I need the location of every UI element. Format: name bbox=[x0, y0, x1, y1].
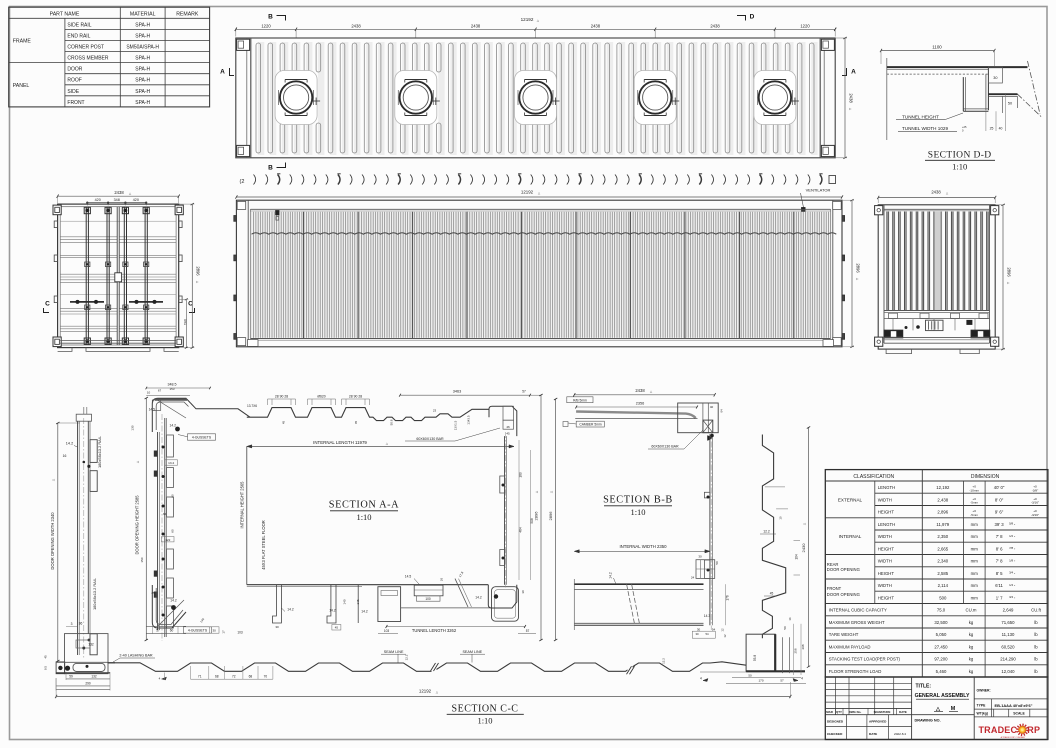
svg-text:DOOR: DOOR bbox=[67, 67, 82, 73]
svg-text:2,665: 2,665 bbox=[937, 547, 948, 552]
svg-text:B: B bbox=[268, 14, 273, 21]
svg-text:ROOF: ROOF bbox=[67, 78, 81, 84]
svg-text:SIGNATURE: SIGNATURE bbox=[874, 710, 891, 714]
svg-text:71: 71 bbox=[198, 675, 202, 679]
svg-text:2438: 2438 bbox=[710, 24, 720, 29]
svg-text:67: 67 bbox=[158, 389, 162, 393]
svg-text:2356: 2356 bbox=[636, 401, 644, 405]
svg-text:12192: 12192 bbox=[521, 17, 534, 22]
svg-text:-3/16": -3/16" bbox=[1031, 513, 1039, 517]
svg-text:2896: 2896 bbox=[534, 511, 539, 521]
svg-text:(2: (2 bbox=[240, 179, 245, 185]
svg-text:INTERNAL CUBIC CAPACITY: INTERNAL CUBIC CAPACITY bbox=[829, 608, 887, 613]
svg-text:DOOR OPENING WIDTH 2340: DOOR OPENING WIDTH 2340 bbox=[50, 512, 55, 570]
svg-text:8' 0": 8' 0" bbox=[995, 498, 1004, 503]
svg-text:2438: 2438 bbox=[635, 388, 645, 393]
svg-text:12.2: 12.2 bbox=[662, 658, 666, 664]
svg-text:SPA-H: SPA-H bbox=[135, 100, 150, 106]
svg-text:12: 12 bbox=[721, 628, 725, 632]
svg-text:3: 3 bbox=[71, 622, 73, 626]
svg-text:STACKING TEST LOAD(PER POST): STACKING TEST LOAD(PER POST) bbox=[829, 657, 901, 662]
svg-text:57: 57 bbox=[156, 629, 160, 633]
svg-text:30: 30 bbox=[993, 76, 997, 80]
svg-text:97,200: 97,200 bbox=[934, 657, 948, 662]
svg-text:36: 36 bbox=[163, 512, 167, 516]
svg-text:SPA-H: SPA-H bbox=[135, 78, 150, 84]
svg-text:lb: lb bbox=[1034, 632, 1038, 637]
svg-text:kg: kg bbox=[969, 632, 974, 637]
svg-text:2022.8.4: 2022.8.4 bbox=[894, 732, 906, 736]
svg-text:2,896: 2,896 bbox=[937, 510, 948, 515]
svg-text:WIDTH: WIDTH bbox=[878, 583, 892, 588]
svg-text:59: 59 bbox=[69, 675, 73, 679]
svg-text:1/4: 1/4 bbox=[1009, 583, 1013, 587]
svg-text:10: 10 bbox=[147, 391, 151, 395]
svg-text:REMARK: REMARK bbox=[176, 11, 199, 17]
svg-text:9' 6": 9' 6" bbox=[995, 510, 1004, 515]
svg-text:5/8: 5/8 bbox=[1009, 522, 1013, 526]
svg-text:A: A bbox=[851, 69, 856, 76]
svg-text:PART NAME: PART NAME bbox=[50, 11, 80, 17]
svg-text:5,460: 5,460 bbox=[936, 669, 947, 674]
svg-text:lb: lb bbox=[1034, 657, 1038, 662]
svg-text:DRAWING NO.: DRAWING NO. bbox=[915, 719, 941, 723]
svg-text:-10mm: -10mm bbox=[969, 488, 979, 492]
svg-text:30: 30 bbox=[213, 629, 217, 633]
svg-text:REAR: REAR bbox=[827, 562, 839, 567]
svg-text:60X60X130 BAR: 60X60X130 BAR bbox=[651, 445, 679, 449]
svg-text:170: 170 bbox=[758, 679, 763, 683]
svg-text:2438: 2438 bbox=[931, 190, 941, 195]
svg-text:4-GUSSETS: 4-GUSSETS bbox=[192, 436, 212, 440]
svg-text:1:10: 1:10 bbox=[477, 716, 492, 726]
svg-text:13.7X6: 13.7X6 bbox=[247, 404, 257, 408]
svg-text:150: 150 bbox=[140, 557, 144, 562]
svg-text:153: 153 bbox=[169, 387, 174, 391]
svg-text:EXTERNAL: EXTERNAL bbox=[838, 497, 863, 502]
svg-text:1/8: 1/8 bbox=[1009, 558, 1013, 562]
svg-text:4: 4 bbox=[801, 677, 803, 681]
svg-text:40' 0": 40' 0" bbox=[994, 485, 1005, 490]
svg-text:2438: 2438 bbox=[591, 24, 601, 29]
svg-text:7' 8: 7' 8 bbox=[996, 534, 1003, 539]
svg-text:68: 68 bbox=[215, 675, 219, 679]
svg-text:30: 30 bbox=[695, 632, 699, 636]
svg-text:SIDE RAIL: SIDE RAIL bbox=[67, 22, 91, 28]
svg-text:11,130: 11,130 bbox=[1002, 632, 1015, 637]
svg-text:60: 60 bbox=[171, 529, 175, 533]
svg-text:lb: lb bbox=[1034, 669, 1038, 674]
svg-text:60X60X130 BAR: 60X60X130 BAR bbox=[416, 437, 444, 441]
svg-text:45: 45 bbox=[506, 432, 510, 436]
svg-text:60,520: 60,520 bbox=[1001, 645, 1015, 650]
svg-text:298: 298 bbox=[801, 644, 805, 649]
svg-text:10: 10 bbox=[779, 516, 783, 520]
svg-text:HEIGHT: HEIGHT bbox=[878, 510, 895, 515]
svg-text:MAXIMUM GROSS WEIGHT: MAXIMUM GROSS WEIGHT bbox=[829, 620, 885, 625]
svg-text:mm: mm bbox=[971, 534, 979, 539]
svg-text:SEAM LINE: SEAM LINE bbox=[384, 650, 404, 654]
svg-text:EB-1AAA 40'x8'x9'6": EB-1AAA 40'x8'x9'6" bbox=[995, 703, 1033, 708]
svg-text:SPA-H: SPA-H bbox=[135, 33, 150, 39]
svg-text:30: 30 bbox=[521, 590, 525, 594]
svg-text:DOOR OPENING HEIGHT 2585: DOOR OPENING HEIGHT 2585 bbox=[135, 495, 140, 555]
svg-text:TARE WEIGHT: TARE WEIGHT bbox=[829, 632, 859, 637]
svg-text:45: 45 bbox=[282, 421, 286, 425]
svg-text:CHECKED: CHECKED bbox=[827, 732, 843, 736]
svg-text:2896: 2896 bbox=[195, 266, 200, 276]
svg-text:214,290: 214,290 bbox=[1000, 657, 1016, 662]
svg-text:INTERNAL: INTERNAL bbox=[839, 534, 862, 539]
svg-text:14.2: 14.2 bbox=[169, 424, 176, 428]
svg-text:WIDTH: WIDTH bbox=[878, 534, 892, 539]
svg-text:2-40 LASHING BAR: 2-40 LASHING BAR bbox=[119, 654, 153, 658]
svg-text:HEIGHT: HEIGHT bbox=[878, 571, 895, 576]
svg-text:420: 420 bbox=[95, 198, 101, 202]
svg-text:24: 24 bbox=[691, 576, 695, 580]
svg-text:R/B 5mm: R/B 5mm bbox=[573, 398, 587, 402]
svg-text:30: 30 bbox=[698, 555, 702, 559]
svg-text:50: 50 bbox=[783, 626, 787, 630]
svg-text:104: 104 bbox=[795, 554, 799, 560]
svg-text:2,649: 2,649 bbox=[1003, 608, 1014, 613]
svg-text:57: 57 bbox=[522, 389, 526, 393]
svg-text:420: 420 bbox=[133, 198, 139, 202]
svg-text:-3/8": -3/8" bbox=[1032, 488, 1038, 492]
svg-text:1:10: 1:10 bbox=[952, 162, 967, 172]
svg-text:348.5: 348.5 bbox=[168, 383, 177, 387]
svg-text:14.2: 14.2 bbox=[361, 610, 368, 614]
svg-text:45X3 FLAT STEEL FLOOR: 45X3 FLAT STEEL FLOOR bbox=[261, 520, 266, 570]
svg-text:SM50A/SPA-H: SM50A/SPA-H bbox=[126, 44, 159, 50]
svg-text:TUNNEL HEIGHT: TUNNEL HEIGHT bbox=[902, 114, 939, 119]
svg-text:kg: kg bbox=[969, 657, 974, 662]
svg-text:CROSS MEMBER: CROSS MEMBER bbox=[67, 56, 109, 62]
svg-text:CLASSIFICATION: CLASSIFICATION bbox=[853, 474, 894, 480]
svg-text:GENERAL ASSEMBLY: GENERAL ASSEMBLY bbox=[915, 693, 970, 699]
svg-text:TITLE:: TITLE: bbox=[916, 684, 932, 690]
svg-text:11,979: 11,979 bbox=[936, 522, 949, 527]
svg-text:57: 57 bbox=[526, 629, 530, 633]
svg-text:RP: RP bbox=[1027, 725, 1040, 735]
svg-text:DIMENSION: DIMENSION bbox=[971, 474, 1000, 480]
svg-text:60: 60 bbox=[171, 494, 175, 498]
svg-text:2438: 2438 bbox=[849, 93, 854, 103]
svg-text:23: 23 bbox=[433, 409, 437, 413]
svg-text:28 90 28: 28 90 28 bbox=[349, 394, 362, 398]
svg-text:103: 103 bbox=[237, 631, 243, 635]
svg-text:180x58x13.2 RAIL: 180x58x13.2 RAIL bbox=[92, 577, 97, 610]
svg-text:140: 140 bbox=[343, 599, 347, 604]
svg-text:WIDTH: WIDTH bbox=[878, 498, 892, 503]
svg-text:68: 68 bbox=[249, 675, 253, 679]
svg-text:2430: 2430 bbox=[801, 543, 806, 553]
svg-text:16: 16 bbox=[788, 617, 792, 621]
svg-text:1100: 1100 bbox=[932, 45, 942, 50]
svg-text:348: 348 bbox=[114, 198, 120, 202]
svg-text:WT(kg): WT(kg) bbox=[977, 712, 989, 716]
svg-text:DATE: DATE bbox=[899, 710, 907, 714]
svg-text:END RAIL: END RAIL bbox=[67, 33, 90, 39]
svg-text:mm: mm bbox=[971, 522, 979, 527]
svg-text:130: 130 bbox=[131, 425, 135, 430]
svg-text:DESIGNED: DESIGNED bbox=[827, 720, 844, 724]
svg-text:2438: 2438 bbox=[351, 24, 361, 29]
svg-text:2896: 2896 bbox=[1007, 267, 1012, 277]
svg-text:SPA-H: SPA-H bbox=[135, 22, 150, 28]
svg-text:54: 54 bbox=[705, 632, 709, 636]
svg-text:13.2: 13.2 bbox=[168, 461, 174, 465]
svg-text:1' 7: 1' 7 bbox=[996, 596, 1003, 601]
svg-text:SPA-H: SPA-H bbox=[135, 89, 150, 95]
svg-text:45: 45 bbox=[44, 655, 48, 659]
svg-text:TRADEC: TRADEC bbox=[978, 725, 1017, 735]
svg-text:39' 3: 39' 3 bbox=[995, 522, 1005, 527]
svg-text:mm: mm bbox=[971, 571, 979, 576]
svg-text:176: 176 bbox=[726, 595, 730, 601]
svg-text:500: 500 bbox=[939, 596, 947, 601]
svg-text:2,340: 2,340 bbox=[937, 559, 948, 564]
svg-text:2,114: 2,114 bbox=[938, 583, 949, 588]
svg-text:60: 60 bbox=[170, 629, 174, 633]
svg-text:9.5: 9.5 bbox=[44, 666, 48, 671]
svg-text:14.2: 14.2 bbox=[170, 599, 177, 603]
svg-text:SCALE: SCALE bbox=[1013, 712, 1025, 716]
svg-text:2,585: 2,585 bbox=[937, 571, 948, 576]
svg-text:APPROVED: APPROVED bbox=[869, 720, 887, 724]
svg-text:3/4: 3/4 bbox=[1009, 595, 1013, 599]
svg-text:OWNER:: OWNER: bbox=[977, 689, 991, 693]
svg-text:28 90 28: 28 90 28 bbox=[275, 394, 288, 398]
svg-text:100: 100 bbox=[425, 597, 431, 601]
svg-text:50: 50 bbox=[748, 674, 752, 678]
svg-text:12,040: 12,040 bbox=[1001, 669, 1015, 674]
svg-text:12.2: 12.2 bbox=[405, 654, 409, 660]
svg-text:kg: kg bbox=[969, 645, 974, 650]
svg-text:SPA-H: SPA-H bbox=[135, 56, 150, 62]
svg-text:WIDTH: WIDTH bbox=[878, 559, 892, 564]
svg-text:INTERNAL HEIGHT 2565: INTERNAL HEIGHT 2565 bbox=[239, 481, 244, 529]
svg-text:1220: 1220 bbox=[261, 24, 271, 29]
svg-text:-5mm: -5mm bbox=[970, 501, 978, 505]
svg-text:DOOR OPENING: DOOR OPENING bbox=[827, 592, 860, 597]
svg-text:LENGTH: LENGTH bbox=[878, 522, 895, 527]
svg-text:17: 17 bbox=[222, 630, 226, 634]
svg-text:36: 36 bbox=[79, 621, 83, 625]
svg-text:CU.m: CU.m bbox=[966, 608, 977, 613]
svg-text:QTY: QTY bbox=[836, 710, 842, 714]
svg-text:132: 132 bbox=[91, 675, 97, 679]
svg-text:46: 46 bbox=[506, 425, 510, 429]
svg-text:180x58x13.2 RAIL: 180x58x13.2 RAIL bbox=[97, 435, 102, 468]
svg-text:12192: 12192 bbox=[419, 688, 432, 693]
svg-text:3463: 3463 bbox=[453, 389, 461, 393]
svg-text:55.8: 55.8 bbox=[753, 655, 757, 661]
svg-text:INTERNAL LENGTH 11979: INTERNAL LENGTH 11979 bbox=[313, 440, 367, 445]
svg-text:DATE: DATE bbox=[869, 732, 877, 736]
svg-text:FLOOR STRENGTH LOAD: FLOOR STRENGTH LOAD bbox=[829, 669, 882, 674]
svg-text:mm: mm bbox=[971, 583, 979, 588]
svg-text:14.2: 14.2 bbox=[66, 442, 73, 446]
svg-text:A: A bbox=[220, 69, 225, 76]
svg-text:lb: lb bbox=[1034, 620, 1038, 625]
svg-text:HEIGHT: HEIGHT bbox=[878, 547, 895, 552]
svg-text:FRONT: FRONT bbox=[827, 586, 842, 591]
svg-text:57: 57 bbox=[780, 679, 784, 683]
svg-text:122: 122 bbox=[165, 538, 170, 542]
svg-text:PANEL: PANEL bbox=[13, 83, 30, 89]
svg-text:HEIGHT: HEIGHT bbox=[878, 596, 895, 601]
svg-text:SEAM LINE: SEAM LINE bbox=[462, 650, 482, 654]
svg-text:75.0: 75.0 bbox=[937, 608, 946, 613]
svg-text:30: 30 bbox=[275, 625, 279, 629]
svg-text:SECTION A-A: SECTION A-A bbox=[329, 500, 399, 511]
svg-text:2,438: 2,438 bbox=[937, 498, 948, 503]
svg-text:LENGTH: LENGTH bbox=[878, 485, 895, 490]
svg-text:4: 4 bbox=[700, 677, 702, 681]
svg-text:1/2: 1/2 bbox=[1009, 534, 1013, 538]
svg-text:Ø620: Ø620 bbox=[317, 394, 325, 398]
svg-text:C: C bbox=[45, 301, 50, 308]
svg-text:mm: mm bbox=[971, 547, 979, 552]
svg-text:14.2: 14.2 bbox=[475, 596, 482, 600]
svg-text:14.2: 14.2 bbox=[609, 572, 613, 579]
svg-text:12,192: 12,192 bbox=[936, 485, 950, 490]
svg-text:12: 12 bbox=[723, 634, 727, 638]
svg-text:145: 145 bbox=[356, 599, 360, 604]
svg-text:2896: 2896 bbox=[548, 511, 553, 521]
svg-text:290: 290 bbox=[85, 682, 91, 686]
svg-text:54: 54 bbox=[712, 628, 716, 632]
svg-text:SECTION C-C: SECTION C-C bbox=[452, 704, 519, 715]
svg-text:FRAME: FRAME bbox=[13, 38, 32, 44]
svg-text:45: 45 bbox=[770, 592, 774, 596]
svg-text:A TRADECORP COMPANY: A TRADECORP COMPANY bbox=[1001, 736, 1026, 739]
svg-text:kg: kg bbox=[969, 620, 974, 625]
svg-text:14.3: 14.3 bbox=[704, 614, 711, 618]
svg-text:-5mm: -5mm bbox=[970, 513, 978, 517]
svg-text:50: 50 bbox=[1008, 102, 1012, 106]
svg-text:1343.5: 1343.5 bbox=[467, 415, 471, 425]
svg-text:VENTILATOR: VENTILATOR bbox=[806, 188, 831, 193]
svg-text:14.5: 14.5 bbox=[405, 575, 412, 579]
svg-text:2438: 2438 bbox=[114, 190, 124, 195]
svg-text:27,450: 27,450 bbox=[934, 645, 948, 650]
svg-text:TYPE: TYPE bbox=[977, 704, 987, 708]
svg-text:25: 25 bbox=[990, 127, 994, 131]
svg-text:2896: 2896 bbox=[856, 263, 861, 273]
svg-text:1220: 1220 bbox=[800, 24, 810, 29]
svg-text:TUNNEL LENGTH 3262: TUNNEL LENGTH 3262 bbox=[412, 628, 457, 633]
svg-text:45: 45 bbox=[354, 421, 358, 425]
svg-text:4-GUSSETS: 4-GUSSETS bbox=[188, 629, 208, 633]
svg-text:2438: 2438 bbox=[471, 24, 481, 29]
svg-text:INTERNAL WIDTH 2350: INTERNAL WIDTH 2350 bbox=[619, 544, 667, 549]
svg-text:3/4: 3/4 bbox=[1009, 571, 1013, 575]
svg-text:SECTION B-B: SECTION B-B bbox=[603, 495, 673, 506]
svg-text:mm: mm bbox=[971, 559, 979, 564]
svg-text:MAR: MAR bbox=[826, 710, 833, 714]
svg-text:14.2: 14.2 bbox=[287, 608, 294, 612]
svg-text:DWG No.: DWG No. bbox=[849, 710, 862, 714]
svg-text:14.5: 14.5 bbox=[149, 408, 156, 412]
svg-text:8' 5: 8' 5 bbox=[996, 571, 1003, 576]
svg-text:SPA-H: SPA-H bbox=[135, 67, 150, 73]
svg-text:12192: 12192 bbox=[521, 190, 534, 195]
svg-text:5,050: 5,050 bbox=[936, 632, 947, 637]
svg-text:MAXIMUM PAYLOAD: MAXIMUM PAYLOAD bbox=[829, 645, 871, 650]
svg-text:132: 132 bbox=[88, 643, 94, 647]
svg-text:25: 25 bbox=[151, 591, 155, 595]
svg-text:B: B bbox=[268, 165, 273, 172]
svg-text:FRONT: FRONT bbox=[67, 100, 84, 106]
svg-text:258: 258 bbox=[794, 648, 798, 653]
svg-text:MATERIAL: MATERIAL bbox=[130, 11, 156, 17]
svg-text:2,350: 2,350 bbox=[937, 534, 948, 539]
svg-text:8' 6: 8' 6 bbox=[996, 547, 1003, 552]
svg-text:13X1.5: 13X1.5 bbox=[454, 420, 458, 430]
svg-text:26: 26 bbox=[440, 578, 444, 582]
svg-text:CAMBER 5mm: CAMBER 5mm bbox=[579, 423, 602, 427]
svg-text:mm: mm bbox=[971, 596, 979, 601]
svg-text:591: 591 bbox=[183, 319, 187, 325]
svg-text:1:10: 1:10 bbox=[630, 507, 645, 517]
svg-text:32,500: 32,500 bbox=[934, 620, 948, 625]
svg-text:SECTION D-D: SECTION D-D bbox=[928, 151, 992, 161]
svg-text:14.2: 14.2 bbox=[329, 609, 336, 613]
svg-text:12.2: 12.2 bbox=[763, 530, 770, 534]
svg-text:45: 45 bbox=[335, 626, 339, 630]
svg-text:72: 72 bbox=[232, 675, 236, 679]
svg-text:kg: kg bbox=[969, 669, 974, 674]
svg-text:40: 40 bbox=[710, 405, 714, 409]
svg-text:CU.ft: CU.ft bbox=[1031, 608, 1042, 613]
svg-text:70: 70 bbox=[264, 675, 268, 679]
svg-text:71,650: 71,650 bbox=[1001, 620, 1015, 625]
svg-text:1:10: 1:10 bbox=[356, 512, 371, 522]
svg-text:lb: lb bbox=[1034, 645, 1038, 650]
svg-text:D: D bbox=[750, 14, 755, 21]
svg-text:7' 8: 7' 8 bbox=[996, 559, 1003, 564]
svg-text:DOOR OPENING: DOOR OPENING bbox=[827, 567, 860, 572]
svg-text:64: 64 bbox=[720, 409, 724, 413]
svg-text:CORNER POST: CORNER POST bbox=[67, 44, 104, 50]
svg-text:50: 50 bbox=[715, 561, 719, 565]
svg-text:TUNNEL WIDTH 1029: TUNNEL WIDTH 1029 bbox=[902, 126, 948, 131]
svg-text:-3/16": -3/16" bbox=[1031, 501, 1039, 505]
svg-text:SIDE: SIDE bbox=[67, 89, 79, 95]
svg-text:7/8: 7/8 bbox=[1009, 546, 1013, 550]
svg-text:6'11: 6'11 bbox=[995, 583, 1003, 588]
svg-text:40: 40 bbox=[999, 127, 1003, 131]
svg-text:50.8: 50.8 bbox=[390, 419, 394, 425]
svg-text:103: 103 bbox=[384, 629, 390, 633]
svg-text:16: 16 bbox=[63, 454, 67, 458]
